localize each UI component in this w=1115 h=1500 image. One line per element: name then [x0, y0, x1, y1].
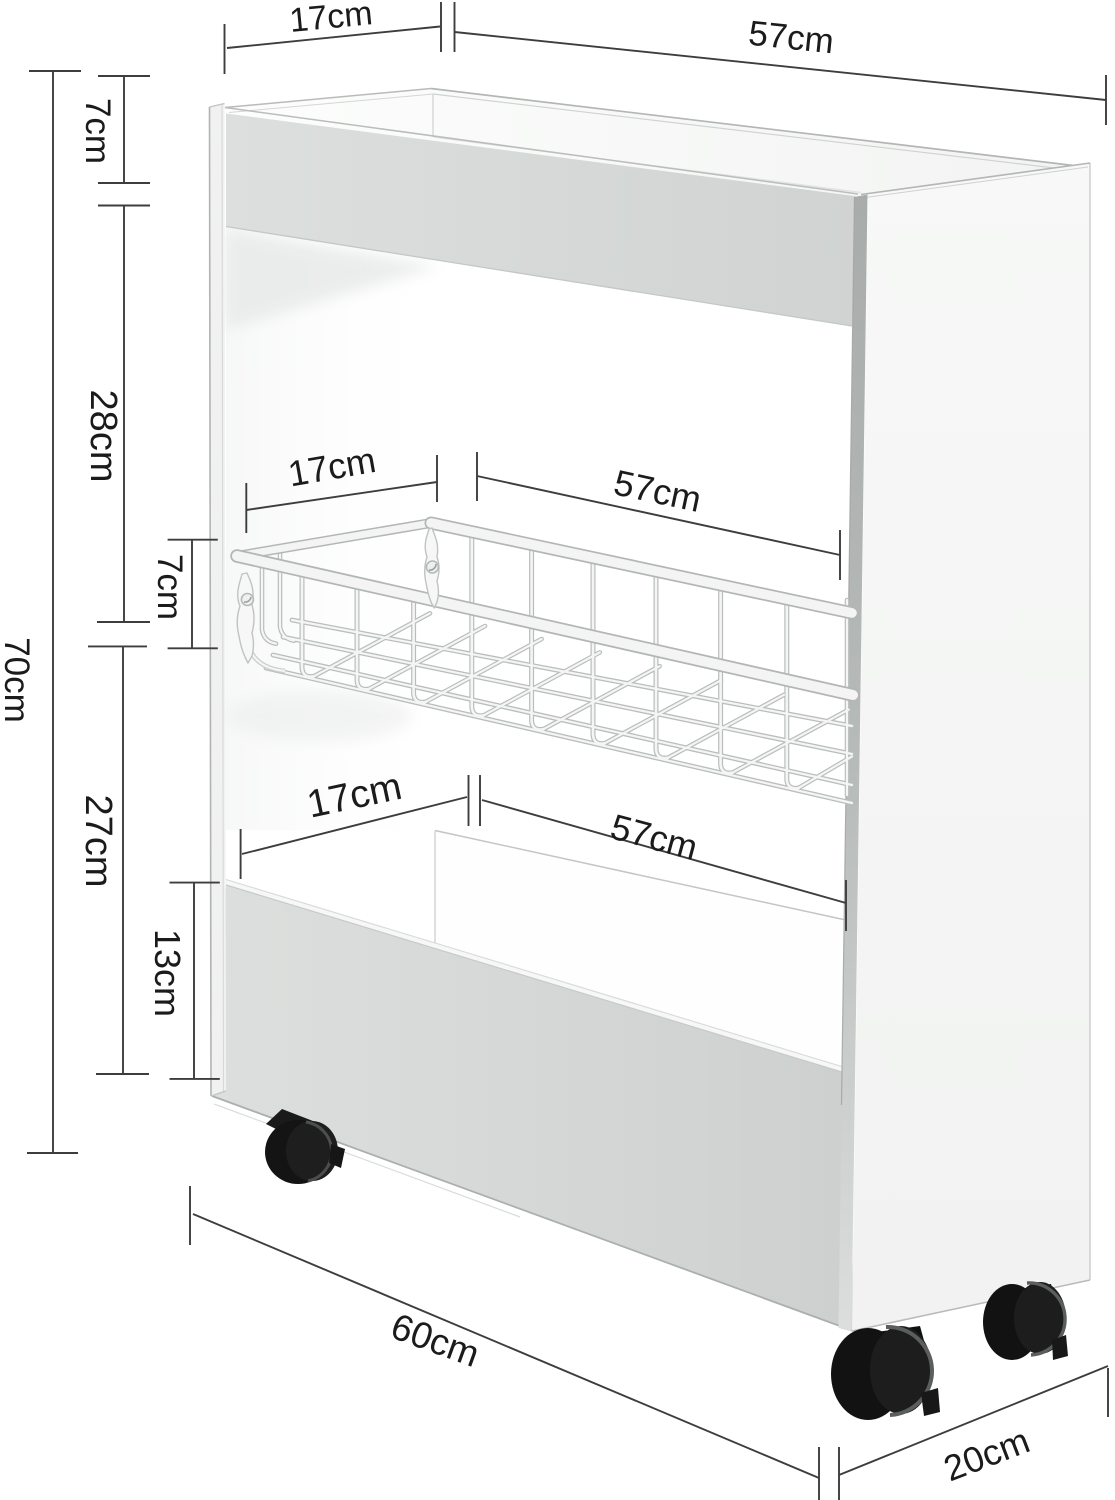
svg-text:13cm: 13cm: [147, 929, 188, 1017]
svg-text:27cm: 27cm: [77, 795, 119, 888]
svg-text:7cm: 7cm: [78, 98, 117, 164]
svg-text:70cm: 70cm: [0, 637, 36, 723]
svg-text:7cm: 7cm: [150, 554, 189, 620]
svg-text:28cm: 28cm: [82, 390, 124, 483]
